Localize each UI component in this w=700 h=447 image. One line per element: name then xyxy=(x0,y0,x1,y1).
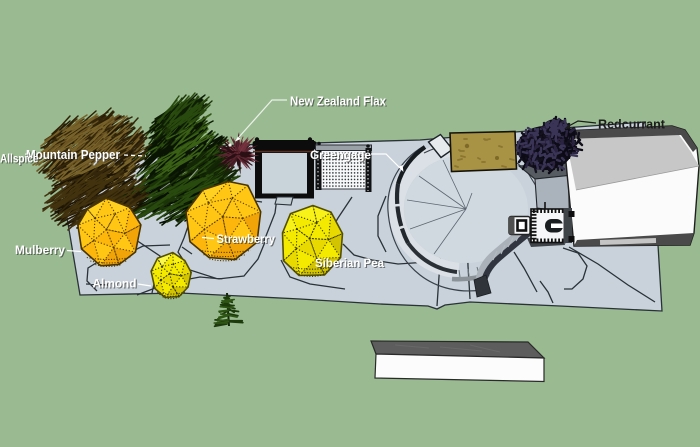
svg-text:Greengage: Greengage xyxy=(310,149,372,162)
svg-text:Almond: Almond xyxy=(93,278,137,291)
svg-text:Allspice: Allspice xyxy=(0,152,39,166)
svg-text:New Zealand Flax: New Zealand Flax xyxy=(290,94,387,109)
svg-text:Strawberry: Strawberry xyxy=(217,233,276,246)
svg-text:Siberian Pea: Siberian Pea xyxy=(315,257,385,270)
svg-text:Redcurrant: Redcurrant xyxy=(598,118,666,132)
svg-text:Mulberry: Mulberry xyxy=(15,244,66,257)
svg-text:Mountain Pepper: Mountain Pepper xyxy=(26,147,120,162)
